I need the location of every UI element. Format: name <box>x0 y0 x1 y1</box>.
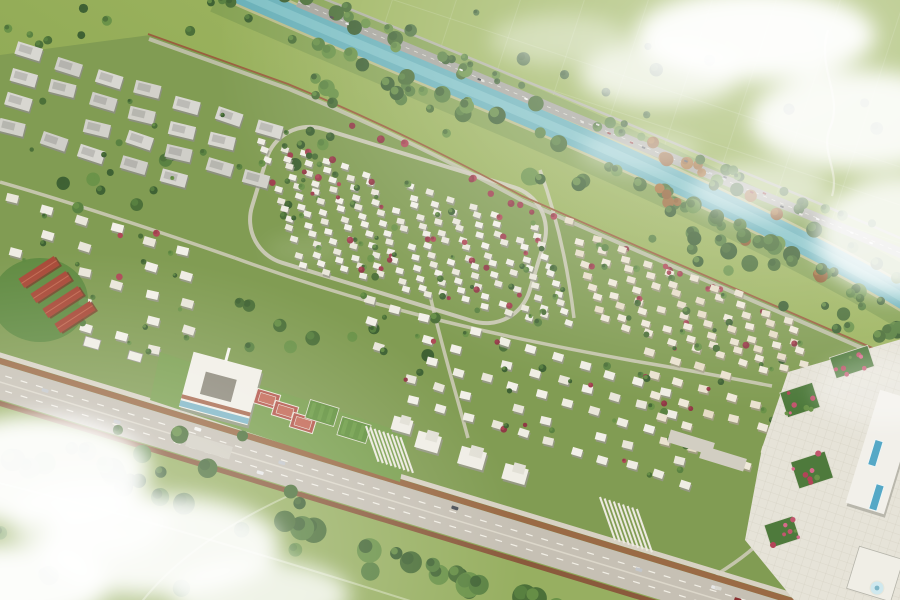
screenshot-root <box>0 0 900 600</box>
aerial-masterplan-render <box>0 0 900 600</box>
cloud <box>10 480 170 560</box>
cloud <box>490 15 630 65</box>
cloud <box>265 236 345 264</box>
cloud <box>580 128 700 172</box>
cloud <box>690 162 830 218</box>
clouds-and-mist <box>0 0 900 600</box>
